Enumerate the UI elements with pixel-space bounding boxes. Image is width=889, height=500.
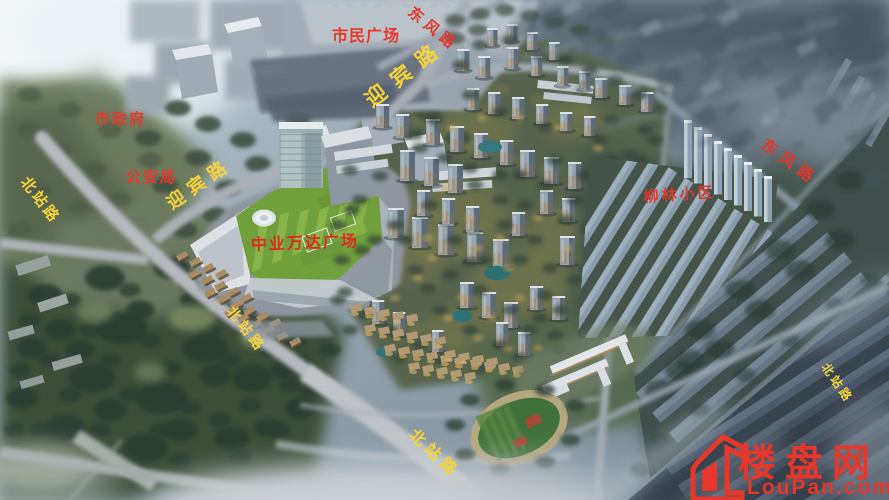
svg-text:市民广场: 市民广场 — [332, 26, 400, 45]
svg-text:公安局: 公安局 — [126, 168, 177, 186]
svg-text:市政府: 市政府 — [95, 110, 146, 128]
svg-text:LouPan.com: LouPan.com — [747, 476, 889, 499]
